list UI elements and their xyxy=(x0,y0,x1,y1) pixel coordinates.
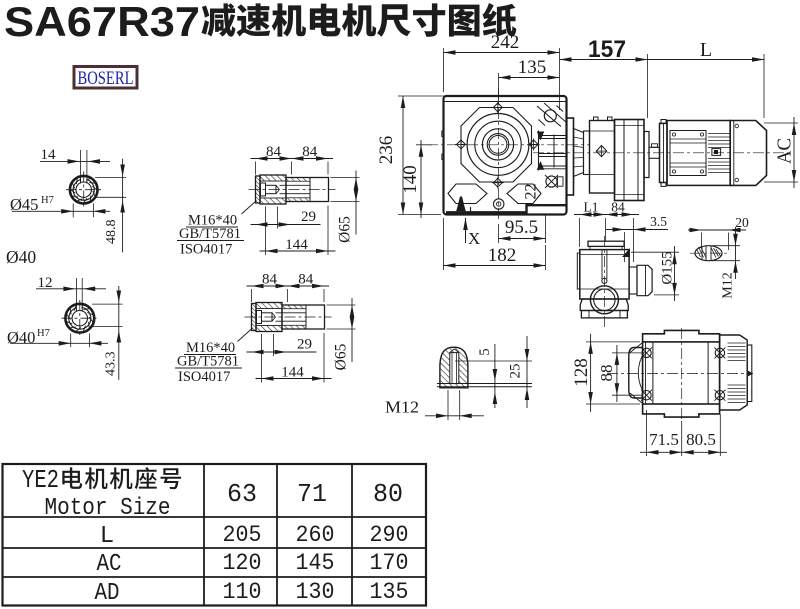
svg-text:157: 157 xyxy=(588,36,626,63)
svg-text:29: 29 xyxy=(297,337,312,353)
svg-text:71: 71 xyxy=(297,479,327,509)
svg-text:5: 5 xyxy=(477,348,493,355)
svg-text:L: L xyxy=(100,523,114,550)
svg-text:M12: M12 xyxy=(385,398,419,417)
svg-text:AD: AD xyxy=(95,580,120,607)
svg-text:290: 290 xyxy=(370,522,409,548)
svg-text:140: 140 xyxy=(400,165,421,194)
svg-text:SA67R37: SA67R37 xyxy=(4,0,200,45)
svg-text:ISO4017: ISO4017 xyxy=(178,369,230,385)
svg-text:95.5: 95.5 xyxy=(505,217,538,238)
svg-text:236: 236 xyxy=(376,136,397,165)
svg-text:Ø155: Ø155 xyxy=(660,251,676,284)
svg-text:63: 63 xyxy=(227,479,257,509)
svg-text:48.8: 48.8 xyxy=(104,219,119,244)
svg-text:Ø65: Ø65 xyxy=(337,216,354,243)
svg-text:128: 128 xyxy=(571,358,592,387)
svg-text:71.5: 71.5 xyxy=(649,430,679,449)
svg-text:43.3: 43.3 xyxy=(103,352,118,377)
svg-text:80: 80 xyxy=(373,479,403,509)
svg-text:29: 29 xyxy=(301,209,316,225)
svg-text:260: 260 xyxy=(296,522,335,548)
svg-text:84: 84 xyxy=(611,200,625,215)
svg-text:X: X xyxy=(468,229,480,248)
svg-text:80.5: 80.5 xyxy=(686,430,716,449)
svg-text:25: 25 xyxy=(508,364,524,379)
svg-text:205: 205 xyxy=(223,522,262,548)
svg-text:84: 84 xyxy=(302,144,318,160)
svg-text:84: 84 xyxy=(262,272,278,288)
svg-text:Ø65: Ø65 xyxy=(333,343,350,370)
svg-text:ISO4017: ISO4017 xyxy=(180,242,232,258)
svg-text:84: 84 xyxy=(298,272,314,288)
svg-text:120: 120 xyxy=(223,550,262,576)
svg-text:88: 88 xyxy=(597,365,616,382)
svg-text:22: 22 xyxy=(523,184,540,200)
svg-text:BOSERL: BOSERL xyxy=(78,69,134,89)
svg-text:L: L xyxy=(700,39,712,61)
svg-text:AC: AC xyxy=(774,138,796,164)
svg-text:170: 170 xyxy=(370,550,409,576)
svg-text:110: 110 xyxy=(223,579,262,605)
svg-text:135: 135 xyxy=(518,57,547,78)
svg-text:Ø40: Ø40 xyxy=(7,328,35,347)
svg-text:GB/T5781: GB/T5781 xyxy=(177,354,239,370)
svg-text:H7: H7 xyxy=(37,328,50,339)
svg-text:182: 182 xyxy=(488,245,517,266)
svg-text:M12: M12 xyxy=(721,272,736,298)
svg-text:20: 20 xyxy=(735,215,749,230)
svg-text:14: 14 xyxy=(41,147,57,163)
svg-text:135: 135 xyxy=(370,579,409,605)
svg-text:L1: L1 xyxy=(584,200,599,215)
svg-text:84: 84 xyxy=(266,144,282,160)
svg-text:130: 130 xyxy=(296,579,335,605)
svg-text:242: 242 xyxy=(491,32,520,53)
svg-text:GB/T5781: GB/T5781 xyxy=(179,226,241,242)
svg-text:YE2: YE2 xyxy=(22,465,59,495)
svg-text:H7: H7 xyxy=(41,195,54,206)
svg-text:3.5: 3.5 xyxy=(650,214,667,229)
svg-text:Ø40: Ø40 xyxy=(6,247,36,267)
svg-text:145: 145 xyxy=(296,550,335,576)
svg-text:AC: AC xyxy=(97,551,122,578)
svg-text:Motor Size: Motor Size xyxy=(45,495,171,522)
